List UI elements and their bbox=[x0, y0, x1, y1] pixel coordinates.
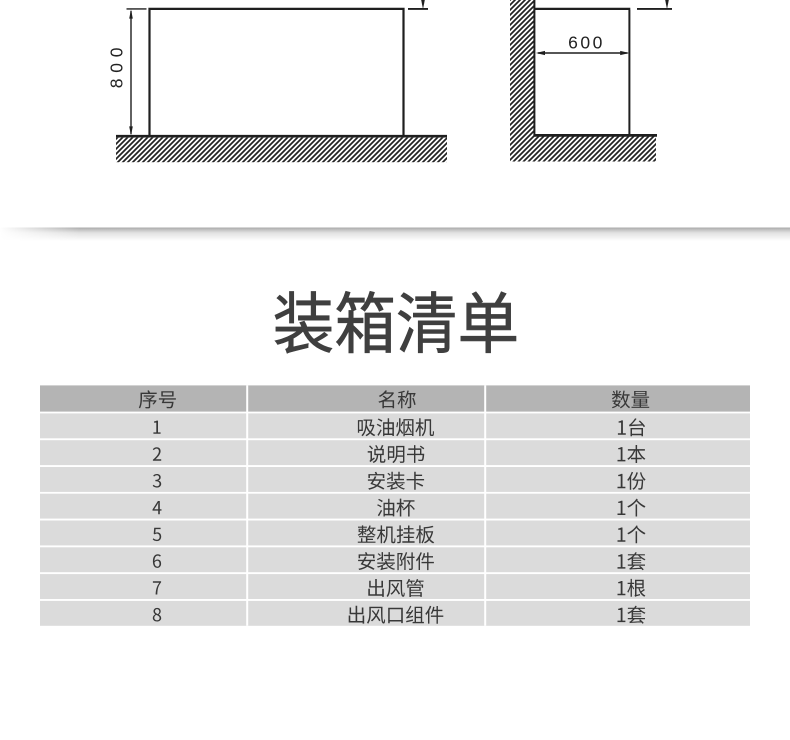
svg-text:800: 800 bbox=[107, 42, 127, 89]
svg-text:600: 600 bbox=[568, 33, 605, 53]
